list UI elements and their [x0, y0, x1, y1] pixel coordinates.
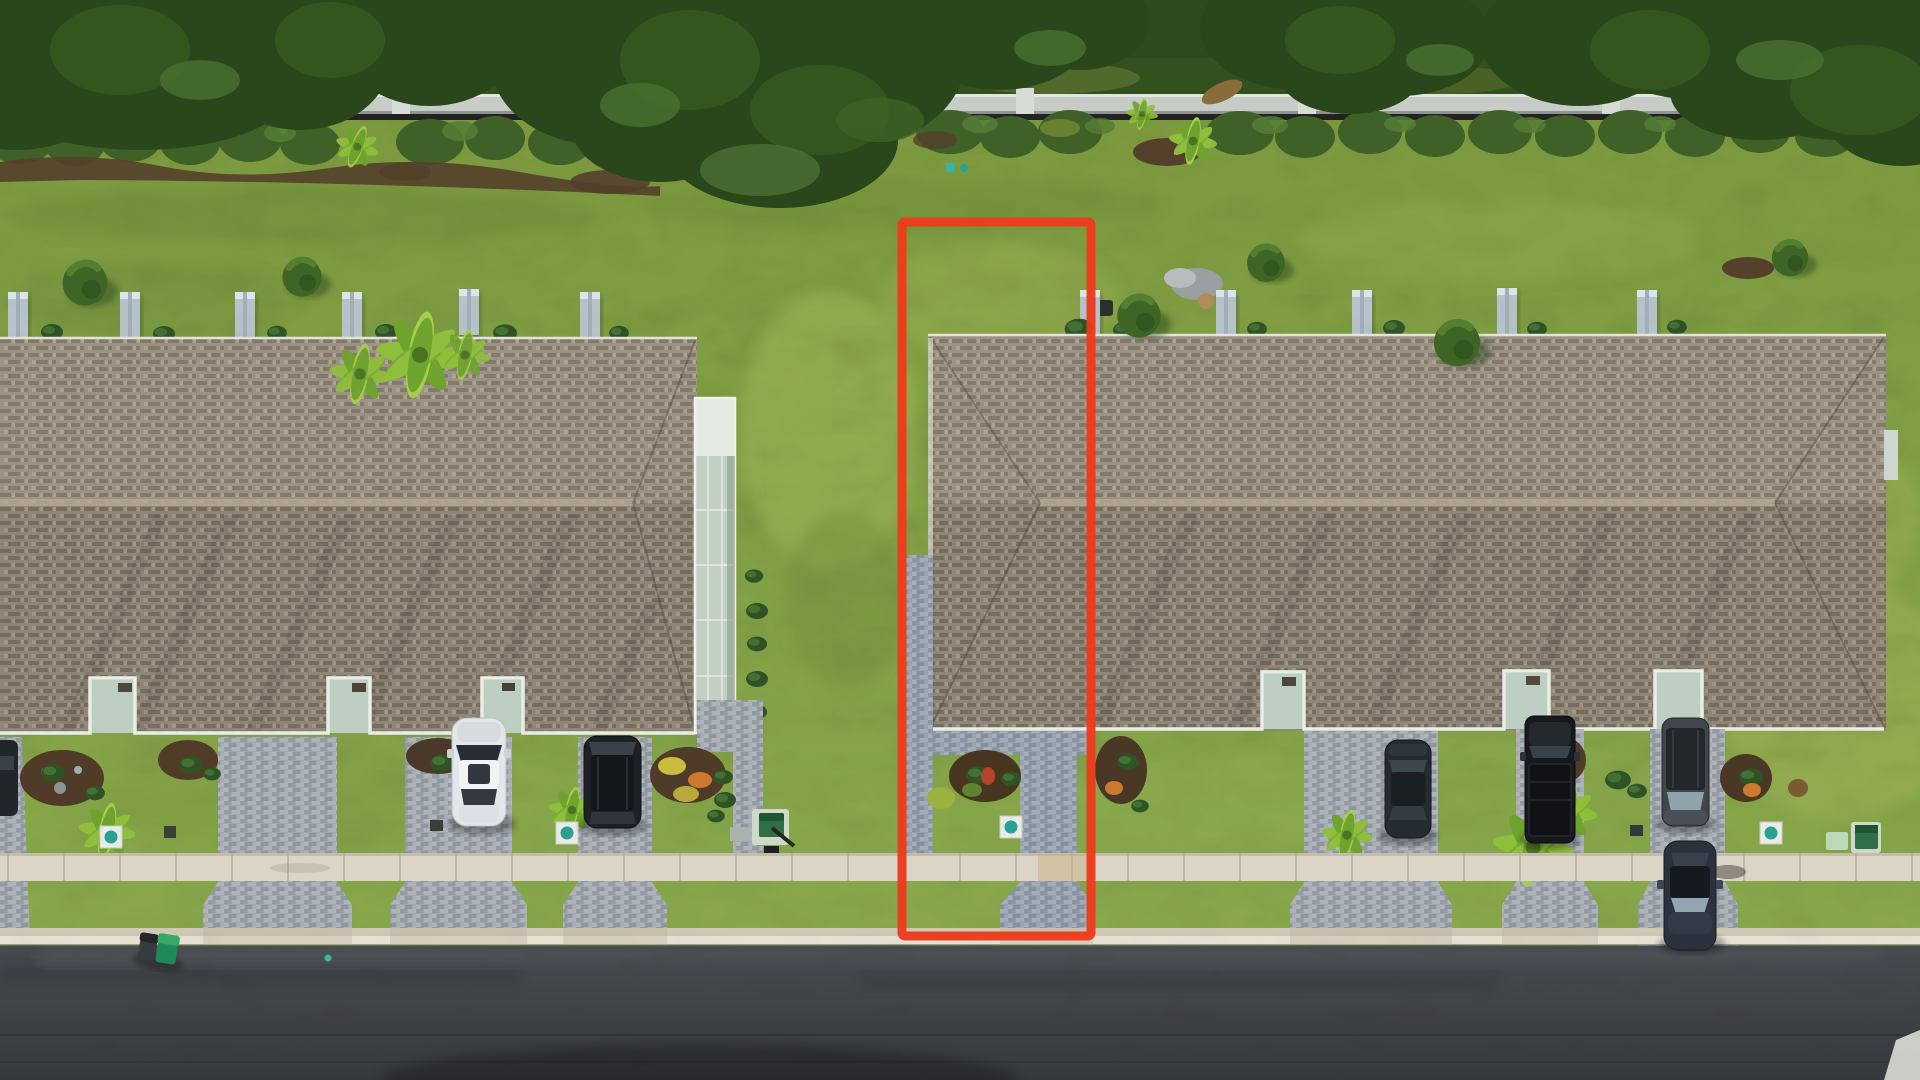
car-gray-suv — [1656, 718, 1716, 834]
car-blue-sedan — [1657, 841, 1726, 954]
truck-black-pickup — [1520, 716, 1580, 850]
lanai-screen-enclosure — [695, 398, 735, 733]
road — [0, 946, 1920, 1080]
utility-marker-teal — [946, 163, 955, 172]
car-dark-sedan — [1378, 740, 1438, 846]
paint-dot — [325, 955, 332, 962]
building-right-roof — [928, 335, 1898, 731]
doormat — [118, 683, 132, 692]
patio-strip-highlighted-lot — [905, 731, 1093, 755]
sidewalk — [0, 853, 1920, 881]
scene-canvas — [0, 0, 1920, 1080]
car-black-suv — [579, 736, 647, 836]
car-edge-sliver — [0, 740, 18, 816]
walkway-right-row — [905, 555, 933, 855]
driveway — [203, 737, 352, 940]
building-left-roof — [0, 338, 768, 733]
patio-left-row — [697, 700, 763, 752]
car-white-sedan — [447, 718, 516, 835]
aerial-photo — [0, 0, 1920, 1080]
